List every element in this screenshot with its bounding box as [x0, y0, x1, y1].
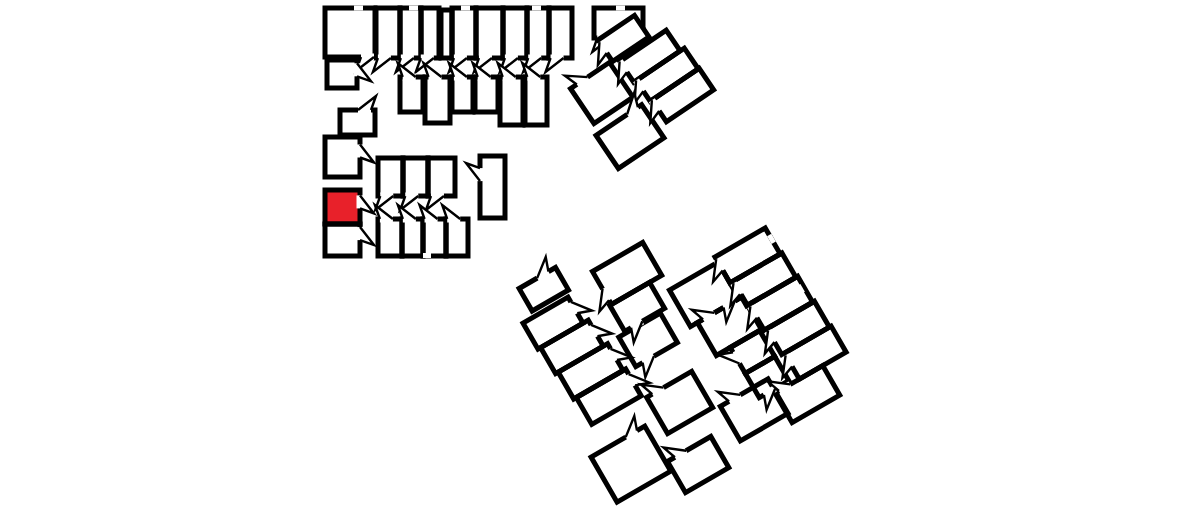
- room-A10[interactable]: [549, 8, 572, 58]
- room-D1[interactable]: [378, 158, 403, 196]
- window-notch: [616, 6, 625, 11]
- room-E3[interactable]: [423, 219, 446, 256]
- window-notch: [532, 6, 541, 11]
- room-A2[interactable]: [327, 60, 357, 88]
- room-A6[interactable]: [452, 8, 476, 58]
- room-D3[interactable]: [428, 158, 455, 196]
- room-B2[interactable]: [425, 77, 450, 123]
- window-notch: [409, 6, 418, 11]
- room-B6[interactable]: [525, 77, 547, 125]
- floorplan-canvas: [0, 0, 1184, 529]
- room-A1[interactable]: [325, 8, 375, 57]
- room-E2[interactable]: [402, 219, 423, 256]
- room-C4[interactable]: [325, 224, 360, 256]
- room-C2[interactable]: [325, 137, 360, 177]
- room-E4[interactable]: [446, 219, 468, 256]
- room-B3[interactable]: [452, 77, 473, 112]
- room-A5[interactable]: [421, 8, 439, 58]
- room-A4[interactable]: [400, 8, 421, 58]
- room-B5[interactable]: [500, 77, 523, 125]
- room-A7[interactable]: [476, 8, 503, 58]
- room-A8[interactable]: [503, 8, 527, 58]
- room-F1[interactable]: [480, 156, 505, 218]
- window-notch: [423, 253, 431, 258]
- room-A3[interactable]: [376, 8, 400, 58]
- room-B1[interactable]: [400, 77, 423, 112]
- room-E1[interactable]: [378, 219, 402, 256]
- room-C1[interactable]: [340, 110, 375, 135]
- selected-room[interactable]: [325, 190, 360, 224]
- floorplan-svg: [0, 0, 1184, 529]
- window-notch: [461, 6, 470, 11]
- room-A9[interactable]: [527, 8, 549, 58]
- room-B4[interactable]: [475, 77, 498, 112]
- room-D2[interactable]: [403, 158, 428, 196]
- window-notch: [354, 6, 363, 11]
